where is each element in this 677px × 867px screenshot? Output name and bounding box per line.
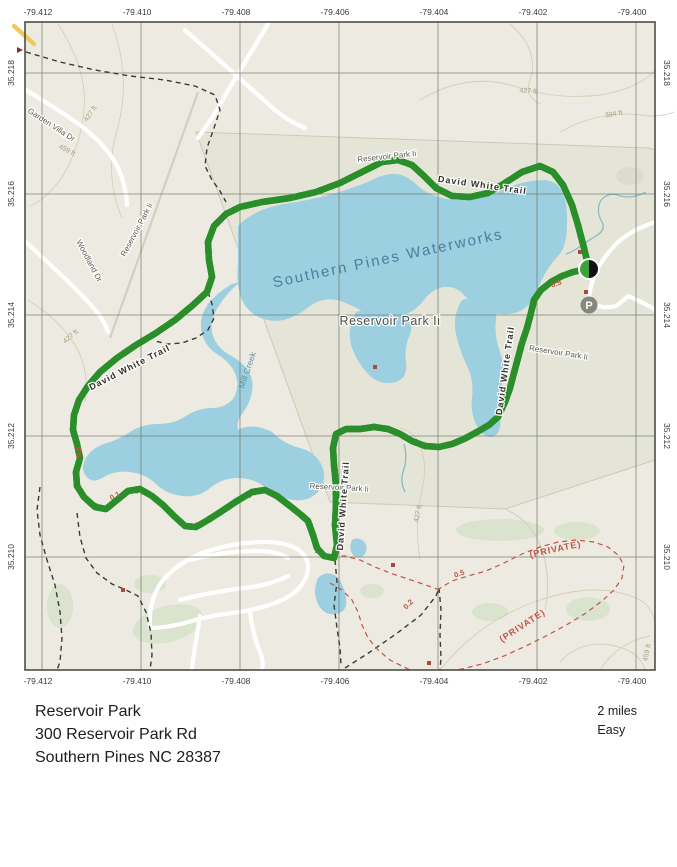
map-svg: Garden Villa Dr Woodland Dr Reservoir Pa… — [0, 0, 677, 697]
trail-meta: 2 miles Easy — [597, 702, 637, 741]
tick-lat: 35.212 — [6, 423, 16, 449]
tick-lat: 35.214 — [6, 302, 16, 328]
tick-lat: 35.216 — [662, 181, 672, 207]
tick-lon: -79.404 — [420, 676, 449, 686]
tick-lon: -79.406 — [321, 676, 350, 686]
tick-lat: 35.214 — [662, 302, 672, 328]
tick-lon: -79.412 — [24, 676, 53, 686]
trailhead-marker — [578, 258, 600, 280]
tick-lon: -79.404 — [420, 7, 449, 17]
trailhead-tick — [17, 47, 23, 53]
label-reservoir-park-ii: Reservoir Park Ii — [340, 314, 441, 328]
parking-icon: P — [581, 297, 598, 314]
tick-lon: -79.406 — [321, 7, 350, 17]
tick-lon: -79.410 — [123, 7, 152, 17]
tick-lon: -79.400 — [618, 7, 647, 17]
tick-lat: 35.212 — [662, 423, 672, 449]
tick-lon: -79.410 — [123, 676, 152, 686]
svg-text:P: P — [585, 300, 592, 312]
tick-lon: -79.408 — [222, 7, 251, 17]
tick-lon: -79.402 — [519, 676, 548, 686]
park-address: 300 Reservoir Park Rd — [35, 723, 221, 746]
tick-lon: -79.412 — [24, 7, 53, 17]
tick-lon: -79.402 — [519, 7, 548, 17]
trail-map-page: Garden Villa Dr Woodland Dr Reservoir Pa… — [0, 0, 677, 867]
park-name: Reservoir Park — [35, 700, 221, 723]
tick-lon: -79.400 — [618, 676, 647, 686]
trail-distance: 2 miles — [597, 702, 637, 721]
tick-lat: 35.210 — [6, 544, 16, 570]
label-distance-05-west: 0.5 — [74, 447, 83, 457]
map-canvas: Garden Villa Dr Woodland Dr Reservoir Pa… — [0, 0, 677, 697]
tick-lat: 35.218 — [6, 60, 16, 86]
tick-lat: 35.216 — [6, 181, 16, 207]
tick-lat: 35.210 — [662, 544, 672, 570]
tick-lat: 35.218 — [662, 60, 672, 86]
park-city: Southern Pines NC 28387 — [35, 746, 221, 769]
tick-lon: -79.408 — [222, 676, 251, 686]
trail-difficulty: Easy — [597, 721, 637, 740]
map-caption: Reservoir Park 300 Reservoir Park Rd Sou… — [35, 700, 221, 770]
